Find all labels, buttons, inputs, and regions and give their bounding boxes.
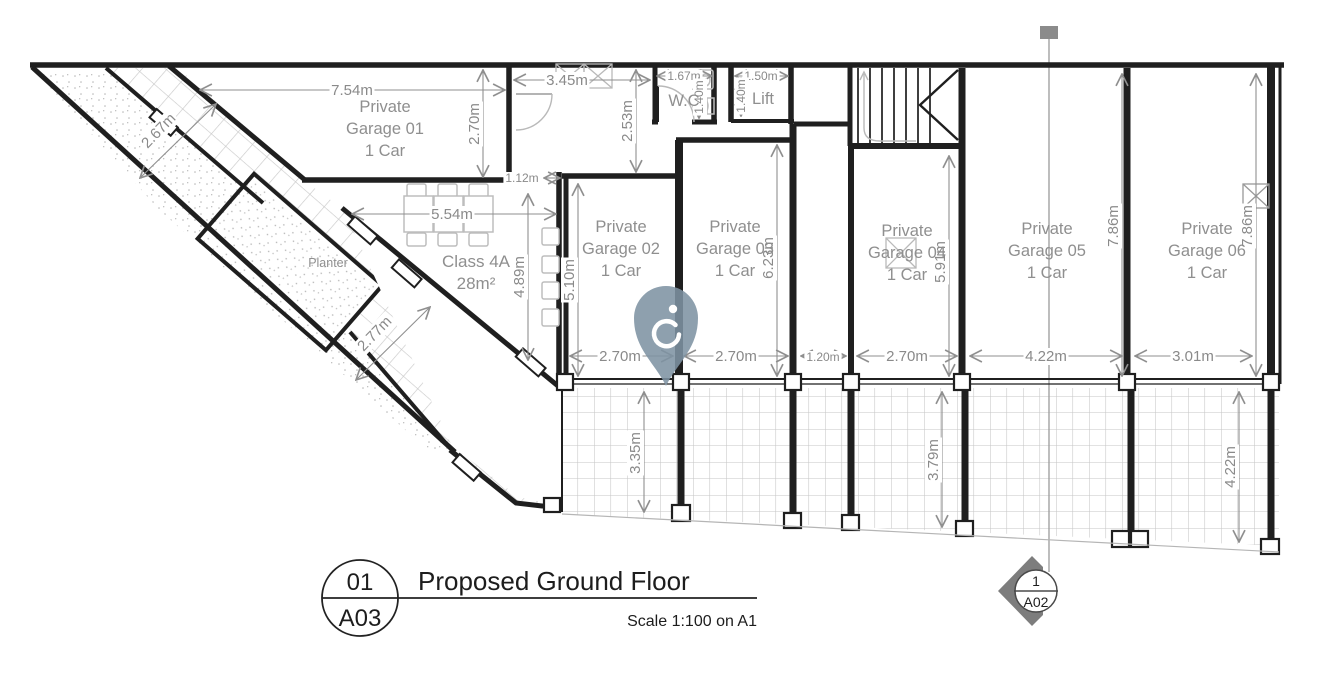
dimension-label-g1_w: 7.54m xyxy=(331,82,373,99)
room-label-garage05-line2: Garage 05 xyxy=(1008,242,1086,260)
dimension-label-off: 1.12m xyxy=(505,171,538,185)
room-label-garage02-line1: Private xyxy=(595,218,646,236)
floor-plan-canvas: 7.54m2.70m3.45m1.67m1.50m1.40m1.40m2.53m… xyxy=(0,0,1341,674)
dimension-g6_d: 7.86m xyxy=(1239,74,1256,376)
dimension-label-g2_d: 5.10m xyxy=(561,259,578,301)
dimension-label-g3_w: 2.70m xyxy=(715,348,757,365)
room-label-garage02: PrivateGarage 021 Car xyxy=(582,218,660,280)
location-pin-marker[interactable] xyxy=(634,286,698,386)
drawing-title: Proposed Ground Floor xyxy=(418,566,690,596)
dimension-g4_w: 2.70m xyxy=(857,348,957,365)
section-detail-number: 1 xyxy=(1032,573,1040,589)
dimension-label-g6_w: 3.01m xyxy=(1172,348,1214,365)
wc-label: W.C xyxy=(668,92,699,110)
doors xyxy=(516,86,694,130)
planter-label: Planter xyxy=(308,256,348,270)
dimension-lobby_w: 3.45m xyxy=(514,72,650,89)
room-label-garage04-line3: 1 Car xyxy=(887,266,928,284)
room-label-garage06: PrivateGarage 061 Car xyxy=(1168,220,1246,282)
title-block: 01 A03 Proposed Ground Floor Scale 1:100… xyxy=(322,560,757,636)
dimension-label-g5_w: 4.22m xyxy=(1025,348,1067,365)
dimension-label-pav_r: 4.22m xyxy=(1222,446,1239,488)
dimension-label-lift_w: 1.50m xyxy=(744,69,777,83)
class4a-label-line2: 28m² xyxy=(457,274,496,293)
room-label-garage05-line1: Private xyxy=(1021,220,1072,238)
dimension-label-lobby_d: 2.53m xyxy=(619,100,636,142)
dimension-label-g4_w: 2.70m xyxy=(886,348,928,365)
dimension-g4_d: 5.91m xyxy=(932,156,949,376)
room-label-garage03-line3: 1 Car xyxy=(715,262,756,280)
dimension-label-g6_d: 7.86m xyxy=(1239,205,1256,247)
dimension-label-class_d: 4.89m xyxy=(511,256,528,298)
room-label-garage01-line3: 1 Car xyxy=(365,142,406,160)
dimension-label-pav_l: 3.35m xyxy=(627,432,644,474)
pin-body[interactable] xyxy=(634,286,698,386)
dimension-lift_d: 1.40m xyxy=(734,77,749,116)
room-label-garage05: PrivateGarage 051 Car xyxy=(1008,220,1086,282)
lift-label: Lift xyxy=(752,90,774,108)
room-label-garage02-line3: 1 Car xyxy=(601,262,642,280)
room-label-garage01: PrivateGarage 011 Car xyxy=(346,98,424,160)
room-label-garage05-line3: 1 Car xyxy=(1027,264,1068,282)
dimension-g1_w: 7.54m xyxy=(200,82,505,99)
dimension-corr_w: 1.20m xyxy=(801,350,846,365)
pin-glyph-dot xyxy=(669,305,677,313)
dimension-label-g1_d: 2.70m xyxy=(466,103,483,145)
dimension-g3_w: 2.70m xyxy=(684,348,788,365)
drawing-sheet-number: A03 xyxy=(339,605,382,632)
dimension-label-lift_d: 1.40m xyxy=(734,79,748,112)
staircase xyxy=(858,68,958,143)
drawing-scale-note: Scale 1:100 on A1 xyxy=(627,613,757,630)
room-label-garage03-line2: Garage 03 xyxy=(696,240,774,258)
dimension-label-lobby_w: 3.45m xyxy=(546,72,588,89)
room-label-garage02-line2: Garage 02 xyxy=(582,240,660,258)
dimension-g5_d: 7.86m xyxy=(1105,74,1122,376)
dimension-g3_d: 6.23m xyxy=(760,145,777,376)
room-label-garage06-line2: Garage 06 xyxy=(1168,242,1246,260)
room-label-garage01-line2: Garage 01 xyxy=(346,120,424,138)
dimension-label-pav_m: 3.79m xyxy=(925,439,942,481)
room-label-garage01-line1: Private xyxy=(359,98,410,116)
dimension-label-g5_d: 7.86m xyxy=(1105,205,1122,247)
drawing-detail-number: 01 xyxy=(347,569,374,596)
room-label-garage04-line1: Private xyxy=(881,222,932,240)
dimension-g1_d: 2.70m xyxy=(466,70,483,177)
room-label-garage04-line2: Garage 04 xyxy=(868,244,946,262)
dimension-g6_w: 3.01m xyxy=(1135,348,1252,365)
room-label-garage06-line3: 1 Car xyxy=(1187,264,1228,282)
dimension-g5_w: 4.22m xyxy=(970,348,1122,365)
section-sheet-number: A02 xyxy=(1024,594,1049,610)
dimension-label-g2_w: 2.70m xyxy=(599,348,641,365)
room-label-garage06-line1: Private xyxy=(1181,220,1232,238)
class4a-label-line1: Class 4A xyxy=(442,252,511,271)
dimension-label-corr_w: 1.20m xyxy=(806,350,839,364)
dimension-label-class_w: 5.54m xyxy=(431,206,473,223)
dimension-lobby_d: 2.53m xyxy=(619,70,636,172)
room-label-garage03-line1: Private xyxy=(709,218,760,236)
